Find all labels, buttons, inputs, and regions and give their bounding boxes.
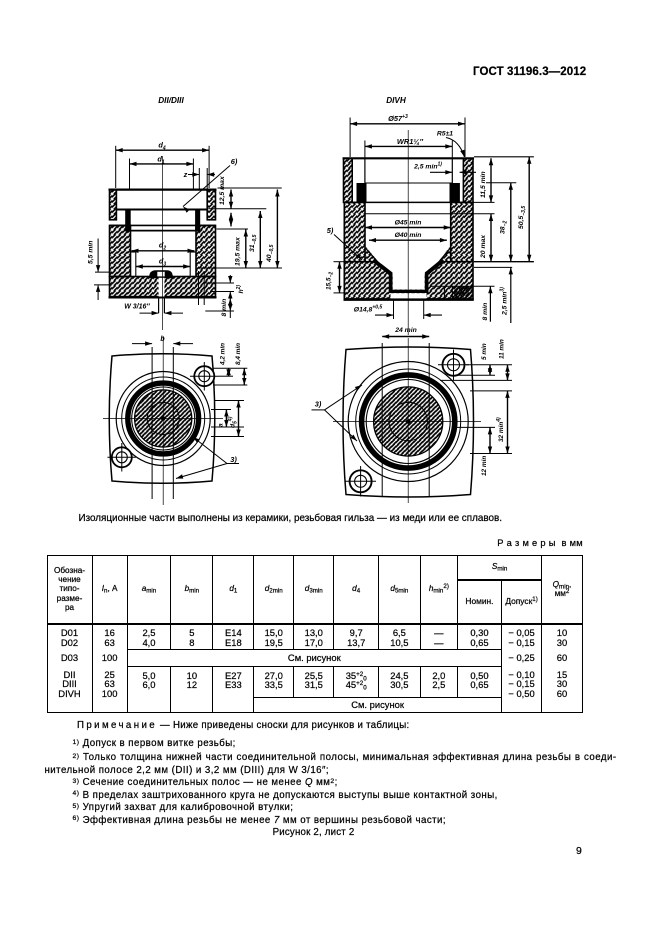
svg-text:5,5 min: 5,5 min bbox=[88, 241, 95, 264]
svg-text:d2: d2 bbox=[159, 241, 167, 252]
svg-text:32 min4): 32 min4) bbox=[496, 417, 505, 442]
svg-text:DII/DIII: DII/DIII bbox=[158, 96, 184, 105]
svg-text:15,5−2: 15,5−2 bbox=[326, 272, 335, 290]
svg-text:8 min: 8 min bbox=[221, 299, 228, 317]
svg-text:4,2 min: 4,2 min bbox=[220, 343, 227, 366]
svg-text:38−2: 38−2 bbox=[500, 221, 509, 234]
svg-text:DIVH: DIVH bbox=[386, 96, 407, 105]
svg-text:50,5−3,5: 50,5−3,5 bbox=[518, 206, 527, 229]
svg-text:2,5 min3): 2,5 min3) bbox=[500, 287, 509, 316]
svg-text:8,4 min: 8,4 min bbox=[235, 343, 242, 365]
svg-text:Ø57+3: Ø57+3 bbox=[388, 114, 408, 123]
svg-text:WR1¼″: WR1¼″ bbox=[397, 137, 424, 146]
svg-text:11 min: 11 min bbox=[499, 339, 506, 359]
svg-text:12 min: 12 min bbox=[481, 456, 488, 476]
svg-text:8 min: 8 min bbox=[482, 303, 489, 321]
svg-text:6): 6) bbox=[231, 157, 238, 166]
svg-text:Ø45 min: Ø45 min bbox=[395, 220, 422, 227]
svg-text:W 3/16″: W 3/16″ bbox=[124, 304, 150, 311]
svg-text:11,5 min: 11,5 min bbox=[480, 171, 487, 198]
svg-text:3): 3) bbox=[230, 455, 237, 464]
svg-text:z: z bbox=[183, 170, 188, 179]
svg-text:24 min: 24 min bbox=[394, 327, 417, 334]
svg-text:12,5 max: 12,5 max bbox=[219, 175, 226, 205]
svg-text:R5±1: R5±1 bbox=[437, 131, 453, 138]
svg-text:2,5 min1): 2,5 min1) bbox=[413, 162, 442, 171]
svg-text:31−0,5: 31−0,5 bbox=[249, 234, 258, 252]
svg-text:Ø40 min: Ø40 min bbox=[395, 232, 422, 239]
svg-text:5 min: 5 min bbox=[481, 343, 488, 360]
svg-text:40−0,5: 40−0,5 bbox=[266, 244, 275, 263]
svg-text:3): 3) bbox=[315, 400, 322, 409]
svg-text:19,5 max: 19,5 max bbox=[235, 236, 242, 266]
svg-text:d54): d54) bbox=[228, 416, 239, 428]
svg-text:20 max: 20 max bbox=[480, 234, 487, 259]
svg-text:a: a bbox=[218, 423, 225, 427]
svg-text:b: b bbox=[160, 336, 165, 343]
svg-text:h2): h2) bbox=[236, 285, 245, 294]
svg-text:Ø14,8+0,5: Ø14,8+0,5 bbox=[354, 305, 383, 314]
svg-text:5): 5) bbox=[327, 226, 334, 235]
